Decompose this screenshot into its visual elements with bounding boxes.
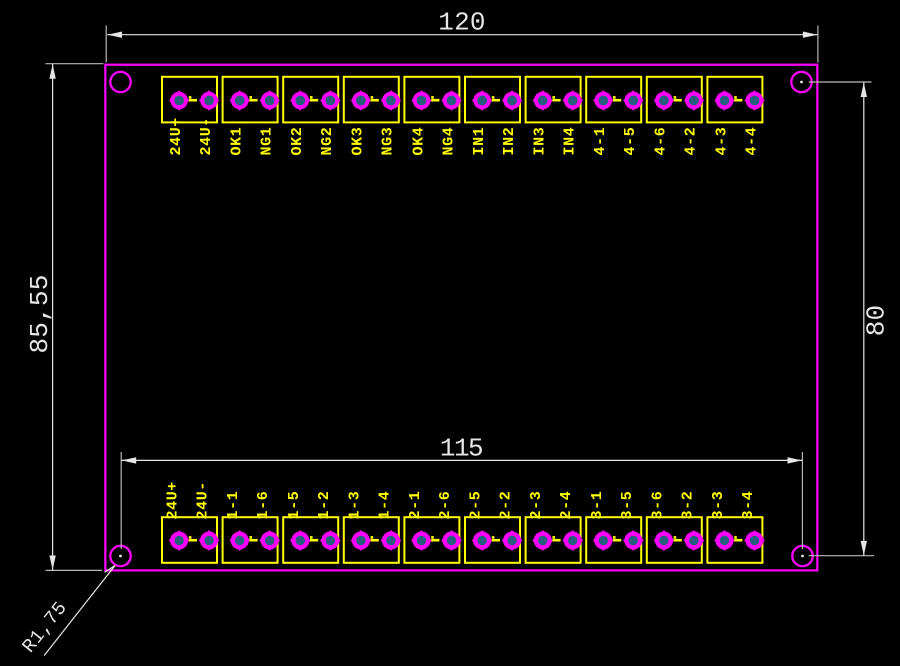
svg-text:2-4: 2-4 <box>558 491 575 520</box>
svg-text:OK3: OK3 <box>350 127 367 156</box>
svg-text:120: 120 <box>438 8 485 38</box>
svg-text:2-2: 2-2 <box>498 491 515 520</box>
svg-text:2-1: 2-1 <box>407 491 424 520</box>
svg-text:NG4: NG4 <box>440 127 457 156</box>
svg-text:IN4: IN4 <box>562 127 579 156</box>
svg-text:4-5: 4-5 <box>622 127 639 156</box>
svg-text:1-6: 1-6 <box>255 491 272 520</box>
svg-text:OK4: OK4 <box>410 127 427 156</box>
svg-text:4-6: 4-6 <box>653 127 670 156</box>
svg-text:OK2: OK2 <box>289 127 306 156</box>
svg-text:2-3: 2-3 <box>528 491 545 520</box>
svg-text:NG2: NG2 <box>319 127 336 156</box>
svg-text:24U-: 24U- <box>198 117 215 155</box>
svg-text:24U-: 24U- <box>195 481 212 519</box>
svg-text:1-5: 1-5 <box>286 491 303 520</box>
svg-text:24U+: 24U+ <box>165 481 182 519</box>
svg-text:NG1: NG1 <box>259 127 276 156</box>
svg-text:4-3: 4-3 <box>713 127 730 156</box>
svg-text:3-2: 3-2 <box>679 491 696 520</box>
svg-text:3-6: 3-6 <box>649 491 666 520</box>
svg-text:1-3: 1-3 <box>346 491 363 520</box>
svg-text:IN2: IN2 <box>501 127 518 156</box>
svg-text:115: 115 <box>440 434 482 464</box>
svg-text:85,55: 85,55 <box>25 274 55 353</box>
svg-text:2-6: 2-6 <box>437 491 454 520</box>
svg-text:3-4: 3-4 <box>740 491 757 520</box>
svg-text:3-3: 3-3 <box>710 491 727 520</box>
svg-text:NG3: NG3 <box>380 127 397 156</box>
svg-text:1-4: 1-4 <box>376 491 393 520</box>
svg-text:2-5: 2-5 <box>468 491 485 520</box>
svg-text:4-1: 4-1 <box>592 127 609 156</box>
svg-text:IN1: IN1 <box>471 127 488 156</box>
svg-text:3-5: 3-5 <box>619 491 636 520</box>
svg-text:IN3: IN3 <box>532 127 549 156</box>
svg-text:4-2: 4-2 <box>683 127 700 156</box>
svg-text:80: 80 <box>862 305 892 337</box>
svg-text:4-4: 4-4 <box>743 127 760 156</box>
svg-text:OK1: OK1 <box>229 127 246 156</box>
svg-text:1-2: 1-2 <box>316 491 333 520</box>
svg-text:24U+: 24U+ <box>168 117 185 155</box>
svg-text:1-1: 1-1 <box>225 491 242 520</box>
svg-text:3-1: 3-1 <box>589 491 606 520</box>
